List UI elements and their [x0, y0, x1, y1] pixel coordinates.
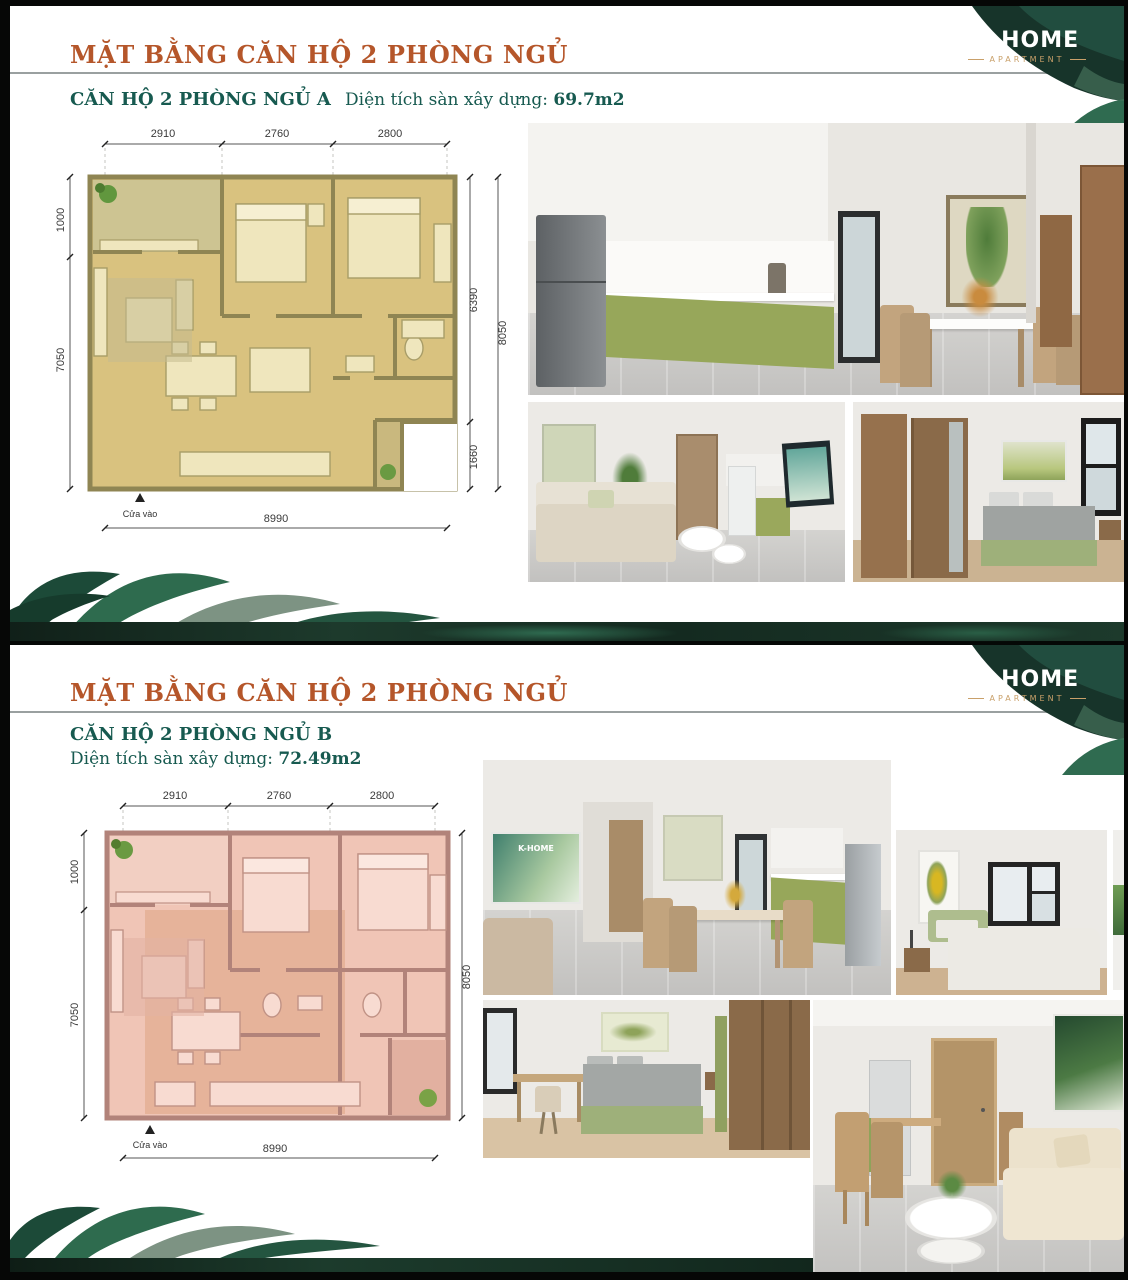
fridge-divider	[536, 281, 606, 283]
chair	[871, 1122, 903, 1198]
sofa	[536, 504, 676, 562]
kitchen-cabinets	[606, 295, 834, 369]
top-border	[0, 0, 1128, 6]
wall-edge	[1026, 123, 1036, 323]
dim-right-total: 8050	[497, 321, 509, 345]
door	[861, 414, 907, 578]
fridge	[728, 466, 756, 536]
chair	[835, 1112, 869, 1192]
area-label: Diện tích sàn xây dựng:	[345, 90, 548, 110]
door	[676, 434, 718, 540]
bath	[402, 320, 444, 338]
window-glass	[487, 1013, 513, 1089]
bed-duvet	[983, 506, 1095, 544]
bed-pillow	[348, 198, 420, 214]
sofa	[483, 918, 553, 995]
window-glass	[1086, 424, 1116, 464]
area-label: Diện tích sàn xây dựng:	[70, 749, 273, 769]
dim-right-upper: 6390	[468, 288, 480, 312]
brochure-page: MẶT BẰNG CĂN HỘ 2 PHÒNG NGỦ CĂN HỘ 2 PHÒ…	[0, 0, 1128, 1280]
leaf-shape	[420, 624, 680, 642]
sofa	[94, 268, 107, 356]
dim-top-3: 2800	[378, 128, 402, 140]
desk	[513, 1074, 585, 1082]
kitchen-cabinets	[756, 498, 790, 536]
chair	[783, 900, 813, 968]
entrance-arrow-icon	[145, 1125, 155, 1134]
chair-leg	[865, 1192, 869, 1226]
bottom-border	[0, 1272, 1128, 1280]
area-value: 72.49m2	[278, 749, 361, 769]
artwork-flower-motif	[926, 860, 948, 906]
sink	[298, 996, 322, 1010]
photo-bedroom-b1	[896, 830, 1107, 995]
brand-name: K-HOME	[952, 667, 1102, 692]
balcony-bench	[116, 892, 210, 903]
wardrobe	[434, 224, 451, 282]
photo-bedroom-b2	[483, 1000, 810, 1158]
nightstand	[1099, 520, 1121, 540]
bed-pillow	[236, 204, 306, 220]
brand-tagline-row: APARTMENT	[952, 55, 1102, 64]
plant	[419, 1089, 437, 1107]
tagline-dash	[1070, 698, 1086, 699]
chair	[205, 998, 220, 1010]
entrance-arrow-icon	[135, 493, 145, 502]
panel-unit-a: MẶT BẰNG CĂN HỘ 2 PHÒNG NGỦ CĂN HỘ 2 PHÒ…	[10, 6, 1124, 622]
leaf-decoration-b	[0, 1196, 420, 1258]
bed-duvet	[948, 928, 1100, 990]
table-leg	[1018, 329, 1024, 387]
area-line: Diện tích sàn xây dựng: 69.7m2	[345, 90, 625, 110]
sofa	[1003, 1168, 1124, 1240]
artwork	[1113, 885, 1124, 935]
bed-pillow	[358, 854, 428, 869]
artwork-motif	[609, 1022, 657, 1042]
photo-living-room-a	[528, 402, 845, 582]
cushion	[1053, 1134, 1091, 1168]
chair	[200, 398, 216, 410]
khome-logo: K-HOME APARTMENT	[952, 28, 1102, 64]
right-border	[1124, 0, 1128, 1280]
dim-top-2: 2760	[267, 790, 291, 802]
door	[1040, 215, 1072, 347]
tagline-dash	[968, 698, 984, 699]
dim-right-lower: 1660	[468, 445, 480, 469]
photo-bedroom-a	[853, 402, 1124, 582]
lamp	[910, 930, 913, 948]
wardrobe-seam	[789, 1000, 792, 1150]
backsplash	[606, 241, 834, 299]
dim-left-top: 1000	[55, 208, 67, 232]
leaf-corner-graphic	[924, 6, 1124, 136]
leaf-shape	[1062, 738, 1124, 775]
dim-bottom: 8990	[264, 513, 288, 525]
window-glass	[1086, 468, 1116, 510]
photo-dining-kitchen-b: K-HOME	[483, 760, 891, 995]
chair	[669, 906, 697, 972]
leaf-shape	[220, 1240, 380, 1258]
chair-leg	[843, 1190, 847, 1224]
fridge	[845, 844, 881, 966]
floorplan-unit-a: 2910 2760 2800 1000 7050 6390 1660 8050 …	[50, 120, 520, 560]
dim-top-1: 2910	[163, 790, 187, 802]
artwork-landscape	[1001, 440, 1067, 482]
flowers	[958, 273, 1002, 321]
kitchen-counter	[155, 1082, 195, 1106]
balcony-bench	[100, 240, 198, 251]
chair	[535, 1086, 561, 1112]
balcony-door-glass	[843, 217, 875, 357]
nightstand	[308, 204, 324, 226]
door	[931, 1038, 997, 1186]
dim-left-total: 7050	[69, 1003, 81, 1027]
tagline-dash	[968, 59, 984, 60]
wardrobe	[430, 875, 446, 930]
fridge	[536, 215, 606, 387]
dim-left-top: 1000	[69, 860, 81, 884]
rear-balcony	[392, 1040, 446, 1115]
sofa	[111, 930, 123, 1012]
coffee-table	[712, 544, 746, 564]
plant	[937, 1170, 967, 1200]
unit-name: CĂN HỘ 2 PHÒNG NGỦ B	[70, 724, 332, 745]
plant	[95, 183, 105, 193]
bed-base	[981, 540, 1097, 566]
chair	[900, 313, 930, 387]
photo-sliver	[1113, 830, 1124, 990]
door	[1080, 165, 1124, 395]
khome-logo: K-HOME APARTMENT	[952, 667, 1102, 703]
coffee-table	[905, 1196, 997, 1240]
leaf-shape	[880, 624, 1080, 642]
desk-leg	[517, 1082, 521, 1122]
plant	[111, 839, 121, 849]
door-knob	[981, 1108, 985, 1112]
upper-cabinets	[771, 828, 843, 868]
table-leg	[775, 920, 780, 968]
chair	[200, 342, 216, 354]
chair	[178, 1052, 193, 1064]
shelf-unit	[715, 1016, 727, 1132]
divider-band	[0, 622, 1128, 645]
panel-unit-b: MẶT BẰNG CĂN HỘ 2 PHÒNG NGỦ CĂN HỘ 2 PHÒ…	[10, 645, 1124, 1272]
area-line: Diện tích sàn xây dựng: 72.49m2	[70, 749, 361, 769]
artwork-plant	[1053, 1014, 1124, 1112]
dining-table	[172, 1012, 240, 1050]
plant	[380, 464, 396, 480]
leaf-corner-graphic	[924, 645, 1124, 775]
sink	[346, 356, 374, 372]
page-title: MẶT BẰNG CĂN HỘ 2 PHÒNG NGỦ	[70, 40, 568, 69]
wardrobe	[729, 1000, 810, 1150]
toilet	[363, 993, 381, 1017]
unit-name: CĂN HỘ 2 PHÒNG NGỦ A	[70, 89, 331, 110]
window-glass	[993, 867, 1027, 921]
door	[609, 820, 643, 932]
flowers	[723, 878, 747, 912]
wardrobe-mirror	[949, 422, 963, 572]
brand-tagline: APARTMENT	[990, 55, 1065, 64]
vase	[768, 263, 786, 293]
nightstand	[904, 948, 930, 972]
kitchen-counter	[180, 452, 330, 476]
brand-name: K-HOME	[952, 28, 1102, 53]
cushion	[588, 490, 614, 508]
khome-canvas: K-HOME	[491, 832, 581, 904]
photo-kitchen-dining-a	[528, 123, 1124, 395]
dim-top-3: 2800	[370, 790, 394, 802]
wardrobe-seam	[761, 1000, 764, 1150]
dim-right-total: 8050	[461, 965, 473, 989]
plan-notch	[402, 422, 457, 491]
area-value: 69.7m2	[553, 90, 624, 110]
artwork	[663, 815, 723, 881]
brand-tagline: APARTMENT	[990, 694, 1065, 703]
rug	[108, 278, 192, 362]
chair	[205, 1052, 220, 1064]
coffee-table-tier	[917, 1238, 985, 1264]
brand-tagline-row: APARTMENT	[952, 694, 1102, 703]
dim-left-total: 7050	[55, 348, 67, 372]
page-title: MẶT BẰNG CĂN HỘ 2 PHÒNG NGỦ	[70, 678, 568, 707]
floorplan-unit-b: 2910 2760 2800 1000 7050 8050 8990 Cửa v…	[60, 780, 500, 1200]
entrance-label: Cửa vào	[133, 1140, 168, 1150]
bed-duvet	[583, 1064, 701, 1110]
bed-base	[581, 1106, 703, 1134]
window-glass	[1032, 867, 1055, 891]
kitchen-island	[250, 348, 310, 392]
photo-entry-living-b	[813, 1000, 1124, 1280]
tagline-dash	[1070, 59, 1086, 60]
bed-pillow	[243, 858, 309, 873]
left-border	[0, 0, 10, 1280]
rug	[124, 938, 204, 1016]
toilet	[405, 336, 423, 360]
dim-bottom: 8990	[263, 1143, 287, 1155]
chair	[172, 398, 188, 410]
dim-top-2: 2760	[265, 128, 289, 140]
kitchen-counter	[210, 1082, 360, 1106]
entrance-label: Cửa vào	[123, 509, 158, 519]
window-glass	[1032, 894, 1055, 921]
tv-screen	[786, 447, 830, 502]
toilet	[263, 993, 281, 1017]
dim-top-1: 2910	[151, 128, 175, 140]
